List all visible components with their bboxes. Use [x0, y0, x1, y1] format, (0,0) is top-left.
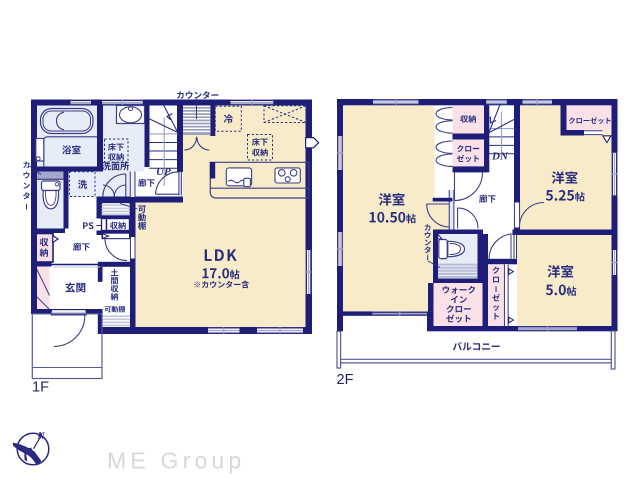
svg-text:UP: UP	[156, 166, 171, 178]
svg-text:N: N	[37, 431, 46, 442]
svg-text:DN: DN	[491, 150, 509, 162]
svg-text:2F: 2F	[337, 372, 354, 388]
svg-text:1F: 1F	[32, 380, 49, 396]
svg-text:ME Group: ME Group	[107, 448, 245, 474]
